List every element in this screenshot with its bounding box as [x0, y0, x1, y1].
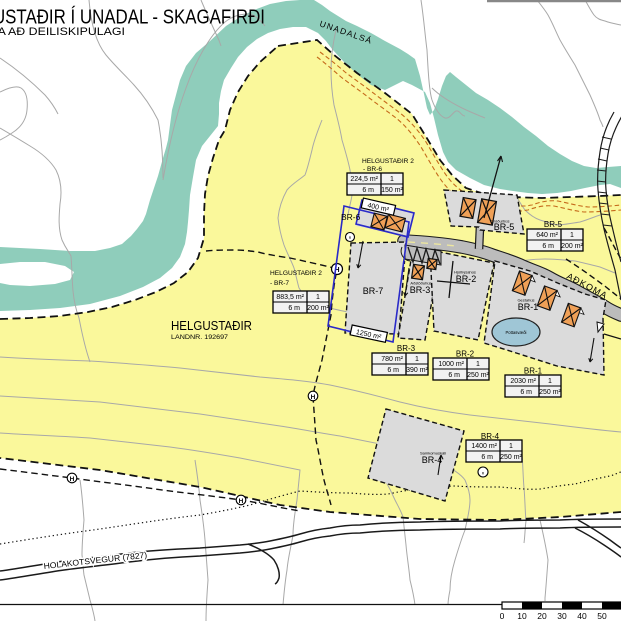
svg-text:BR-6: BR-6	[341, 212, 361, 222]
svg-text:10: 10	[517, 611, 527, 621]
svg-text:BR-3: BR-3	[397, 344, 416, 353]
svg-text:- BR-6: - BR-6	[363, 166, 382, 173]
svg-text:6 m: 6 m	[362, 187, 374, 194]
svg-text:TILLAGA AÐ DEILISKIPULAGI: TILLAGA AÐ DEILISKIPULAGI	[0, 26, 125, 38]
svg-text:883,5 m²: 883,5 m²	[276, 294, 304, 301]
svg-text:40: 40	[577, 611, 587, 621]
svg-text:50: 50	[597, 611, 607, 621]
svg-text:6 m: 6 m	[387, 367, 399, 374]
svg-text:BR-4: BR-4	[481, 432, 500, 441]
svg-text:HELGUSTAÐIR 2: HELGUSTAÐIR 2	[362, 158, 414, 165]
svg-text:30: 30	[557, 611, 567, 621]
svg-text:1: 1	[316, 294, 320, 301]
svg-text:H: H	[239, 498, 244, 505]
svg-text:1: 1	[548, 378, 552, 385]
svg-text:1: 1	[415, 356, 419, 363]
svg-text:HELGUSTAÐIR 2: HELGUSTAÐIR 2	[270, 270, 322, 277]
svg-text:BR-1: BR-1	[518, 302, 539, 312]
svg-text:1: 1	[390, 176, 394, 183]
svg-text:BR-3: BR-3	[410, 285, 431, 295]
svg-text:6 m: 6 m	[520, 389, 532, 396]
svg-text:0: 0	[500, 611, 505, 621]
svg-text:1000 m²: 1000 m²	[438, 361, 464, 368]
svg-text:224,5 m²: 224,5 m²	[350, 176, 378, 183]
svg-text:Pottasvæði: Pottasvæði	[506, 330, 527, 335]
svg-text:6 m: 6 m	[448, 372, 460, 379]
svg-text:LANDNR. 192697: LANDNR. 192697	[171, 334, 229, 341]
svg-text:640 m²: 640 m²	[536, 232, 558, 239]
svg-text:6 m: 6 m	[542, 243, 554, 250]
svg-text:BR-5: BR-5	[494, 222, 515, 232]
svg-text:BR-5: BR-5	[544, 220, 563, 229]
svg-text:200 m²: 200 m²	[307, 305, 329, 312]
svg-text:2030 m²: 2030 m²	[510, 378, 536, 385]
svg-text:1: 1	[570, 232, 574, 239]
svg-text:BR-1: BR-1	[524, 367, 543, 376]
svg-text:BR-2: BR-2	[456, 274, 477, 284]
svg-text:H: H	[311, 394, 316, 401]
svg-text:HELGUSTAÐIR: HELGUSTAÐIR	[171, 319, 252, 333]
svg-text:H: H	[70, 476, 75, 483]
svg-text:BR-7: BR-7	[363, 286, 384, 296]
svg-text:1: 1	[476, 361, 480, 368]
svg-text:1400 m²: 1400 m²	[471, 443, 497, 450]
svg-text:BR-4: BR-4	[422, 455, 443, 465]
svg-text:780 m²: 780 m²	[381, 356, 403, 363]
svg-text:250 m²: 250 m²	[539, 389, 561, 396]
svg-text:- BR-7: - BR-7	[270, 280, 289, 287]
svg-text:200 m²: 200 m²	[561, 243, 583, 250]
svg-text:6 m: 6 m	[288, 305, 300, 312]
svg-text:250 m²: 250 m²	[467, 372, 489, 379]
svg-text:1: 1	[509, 443, 513, 450]
svg-text:250 m²: 250 m²	[500, 454, 522, 461]
svg-text:390 m²: 390 m²	[406, 367, 428, 374]
svg-text:150 m²: 150 m²	[381, 187, 403, 194]
svg-text:6 m: 6 m	[481, 454, 493, 461]
svg-text:20: 20	[537, 611, 547, 621]
svg-text:BR-2: BR-2	[456, 350, 475, 359]
